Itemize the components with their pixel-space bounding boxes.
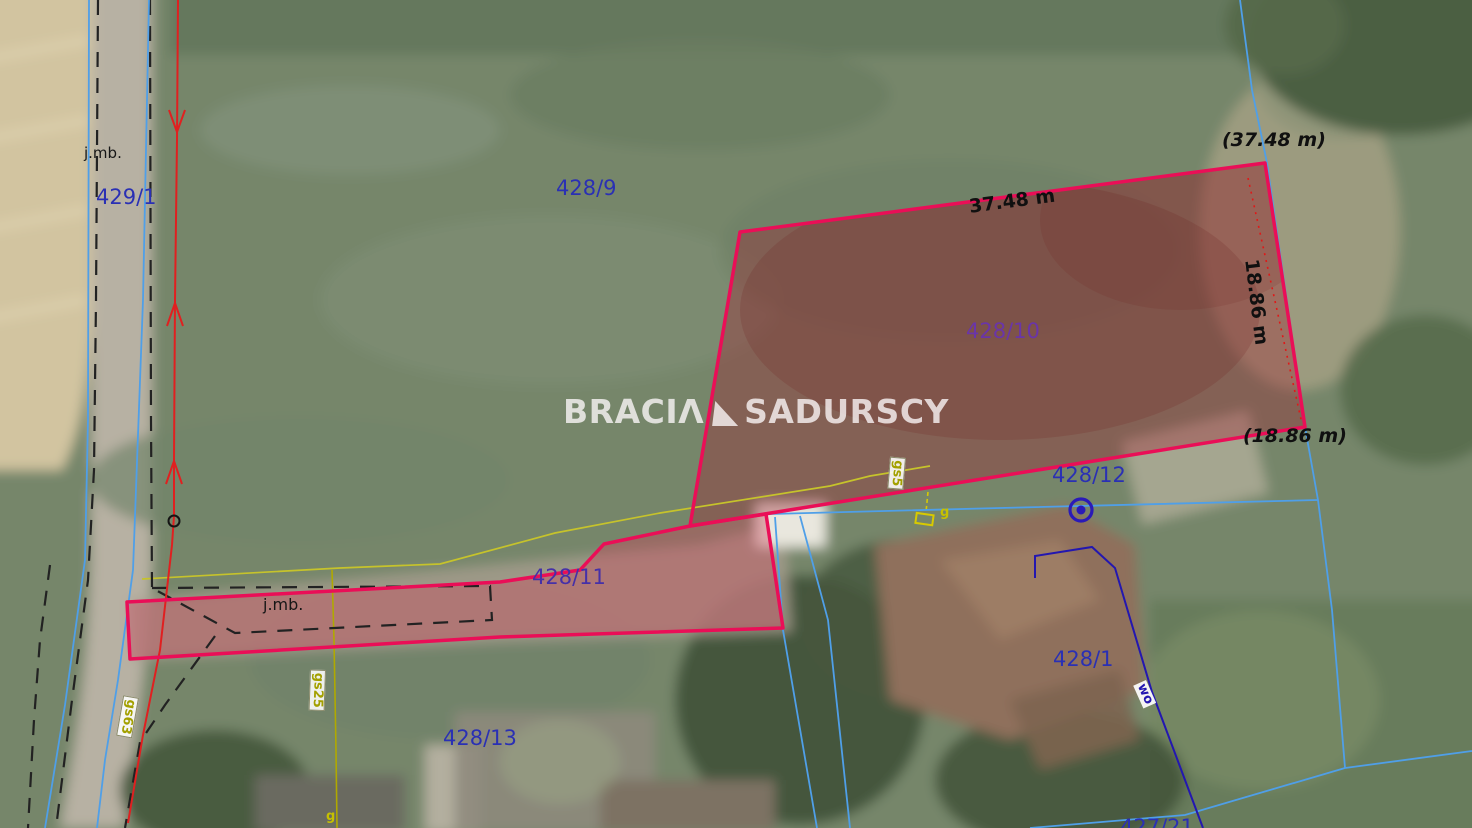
- gas-label-g-house: g: [940, 506, 949, 520]
- parcel-label-428-1: 428/1: [1053, 648, 1114, 670]
- cadastral-map: j.mb. 429/1 428/9 428/10 428/11 428/12 4…: [0, 0, 1472, 828]
- gas-label-g-bottom: g: [326, 810, 335, 824]
- field: [0, 0, 94, 470]
- parcel-label-428-11: 428/11: [532, 566, 606, 588]
- road-label-jmb: j.mb.: [84, 146, 122, 162]
- watermark: BRACIΛ SADURSCY: [563, 392, 949, 431]
- parcel-label-428-13: 428/13: [443, 727, 517, 749]
- utility-circle-dot-icon: [1077, 506, 1086, 515]
- gas-label-gs5: gs5: [888, 457, 906, 490]
- road-label-jmb-strip: j.mb.: [263, 597, 303, 614]
- parcel-label-428-9: 428/9: [556, 177, 617, 199]
- parcel-label-428-12: 428/12: [1052, 464, 1126, 486]
- watermark-right: SADURSCY: [744, 392, 949, 431]
- measurement-37-48-paren: (37.48 m): [1222, 131, 1326, 151]
- parcel-label-428-10: 428/10: [966, 320, 1040, 342]
- parcel-label-429-1: 429/1: [96, 186, 157, 208]
- measurement-18-86-paren: (18.86 m): [1243, 427, 1347, 447]
- watermark-triangle-icon: [712, 401, 738, 426]
- gas-label-gs25: gs25: [309, 669, 326, 711]
- watermark-left: BRACIΛ: [563, 392, 704, 431]
- parcel-label-427-21: 427/21: [1120, 816, 1194, 828]
